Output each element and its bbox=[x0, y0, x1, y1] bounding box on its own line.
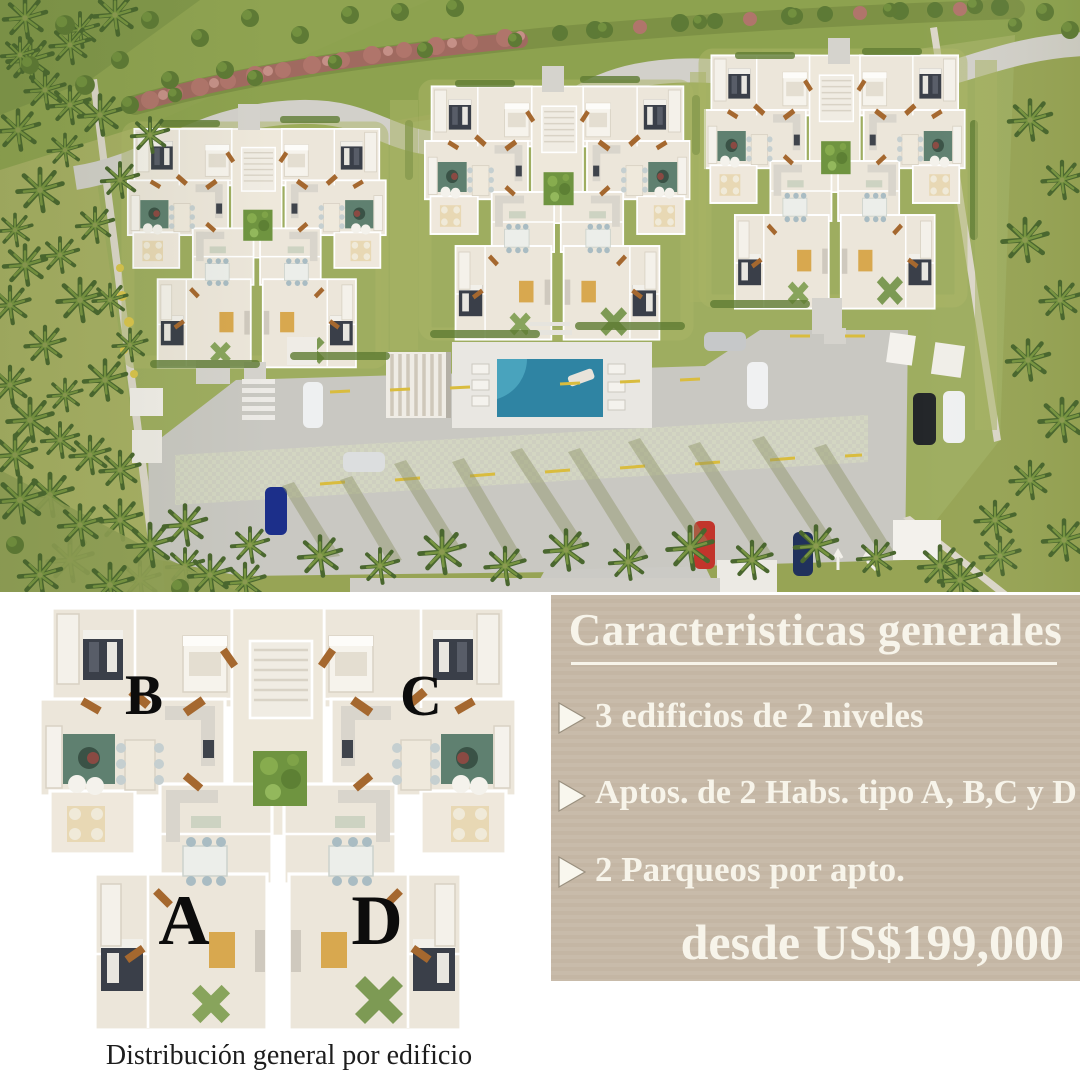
svg-text:A: A bbox=[158, 882, 209, 960]
svg-text:Distribución general por edifi: Distribución general por edificio bbox=[106, 1040, 472, 1071]
svg-text:C: C bbox=[400, 663, 442, 728]
svg-text:D: D bbox=[351, 882, 402, 960]
svg-text:B: B bbox=[125, 664, 163, 727]
